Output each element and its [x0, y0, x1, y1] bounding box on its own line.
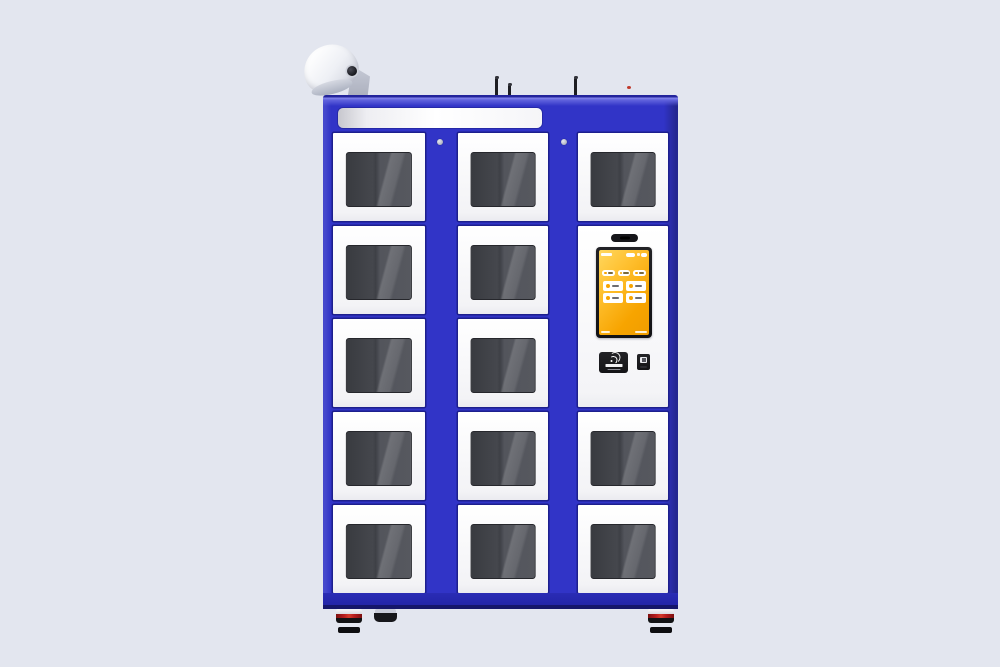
screen-menu-button — [603, 281, 623, 291]
locker-door — [578, 133, 668, 221]
header-chip — [626, 253, 635, 257]
locker-door — [458, 412, 548, 500]
locker-door-window — [346, 338, 412, 393]
screen-logo-mark — [601, 253, 612, 256]
locker-door — [458, 226, 548, 314]
locker-door-window — [346, 152, 412, 207]
locker-door-window — [471, 152, 536, 207]
column-left — [333, 133, 425, 593]
locker-door — [458, 133, 548, 221]
screw-icon — [561, 139, 567, 145]
orange-dot-icon — [606, 296, 611, 301]
leveling-foot — [336, 609, 362, 635]
screw-icon — [437, 139, 443, 145]
screen-quick-button — [602, 270, 615, 276]
privacy-camera-bar-icon — [611, 234, 638, 242]
screen-menu-button — [603, 293, 623, 303]
screen-menu-button — [626, 293, 646, 303]
leveling-foot — [648, 609, 674, 635]
locker-door-window — [591, 152, 656, 207]
screen-footer-left — [601, 331, 610, 333]
screen-menu-button — [626, 281, 646, 291]
camera-lens-icon — [347, 66, 357, 76]
orange-dot-icon — [629, 284, 634, 289]
header-sign — [338, 108, 542, 128]
product-render — [0, 0, 1000, 667]
locker-door — [333, 226, 425, 314]
touchscreen — [599, 250, 649, 335]
scanner-window-icon — [637, 354, 650, 370]
locker-door-window — [591, 524, 656, 579]
orange-dot-icon — [606, 284, 611, 289]
locker-door — [333, 505, 425, 593]
locker-door-window — [346, 245, 412, 300]
locker-door-window — [346, 524, 412, 579]
locker-door — [333, 412, 425, 500]
header-chip — [641, 253, 647, 257]
indicator-dot — [627, 86, 631, 89]
card-reader-label — [605, 364, 622, 367]
locker-door-window — [471, 245, 536, 300]
menu-button-grid — [603, 281, 646, 303]
locker-door-window — [471, 431, 536, 486]
quick-button-row — [599, 270, 649, 276]
screen-header-chips — [626, 253, 647, 257]
leveling-foot — [374, 609, 397, 625]
screen-quick-button — [633, 270, 646, 276]
cabinet-base — [323, 593, 678, 609]
locker-door — [578, 412, 668, 500]
screen-quick-button — [618, 270, 631, 276]
locker-door-window — [471, 524, 536, 579]
header-chip-dot — [637, 253, 640, 256]
card-reader-sublabel — [607, 369, 620, 371]
column-right — [578, 133, 668, 593]
locker-door — [333, 133, 425, 221]
locker-door — [458, 505, 548, 593]
locker-door-window — [471, 338, 536, 393]
touchscreen-bezel — [596, 247, 652, 338]
locker-door-window — [591, 431, 656, 486]
locker-cabinet — [323, 95, 678, 609]
screen-footer-right — [635, 331, 647, 333]
locker-door — [578, 505, 668, 593]
locker-door-window — [346, 431, 412, 486]
locker-door — [458, 319, 548, 407]
locker-door — [333, 319, 425, 407]
card-reader — [599, 352, 628, 373]
contactless-card-icon — [608, 355, 619, 362]
kiosk-panel — [578, 226, 668, 407]
column-middle — [458, 133, 548, 593]
orange-dot-icon — [629, 296, 634, 301]
